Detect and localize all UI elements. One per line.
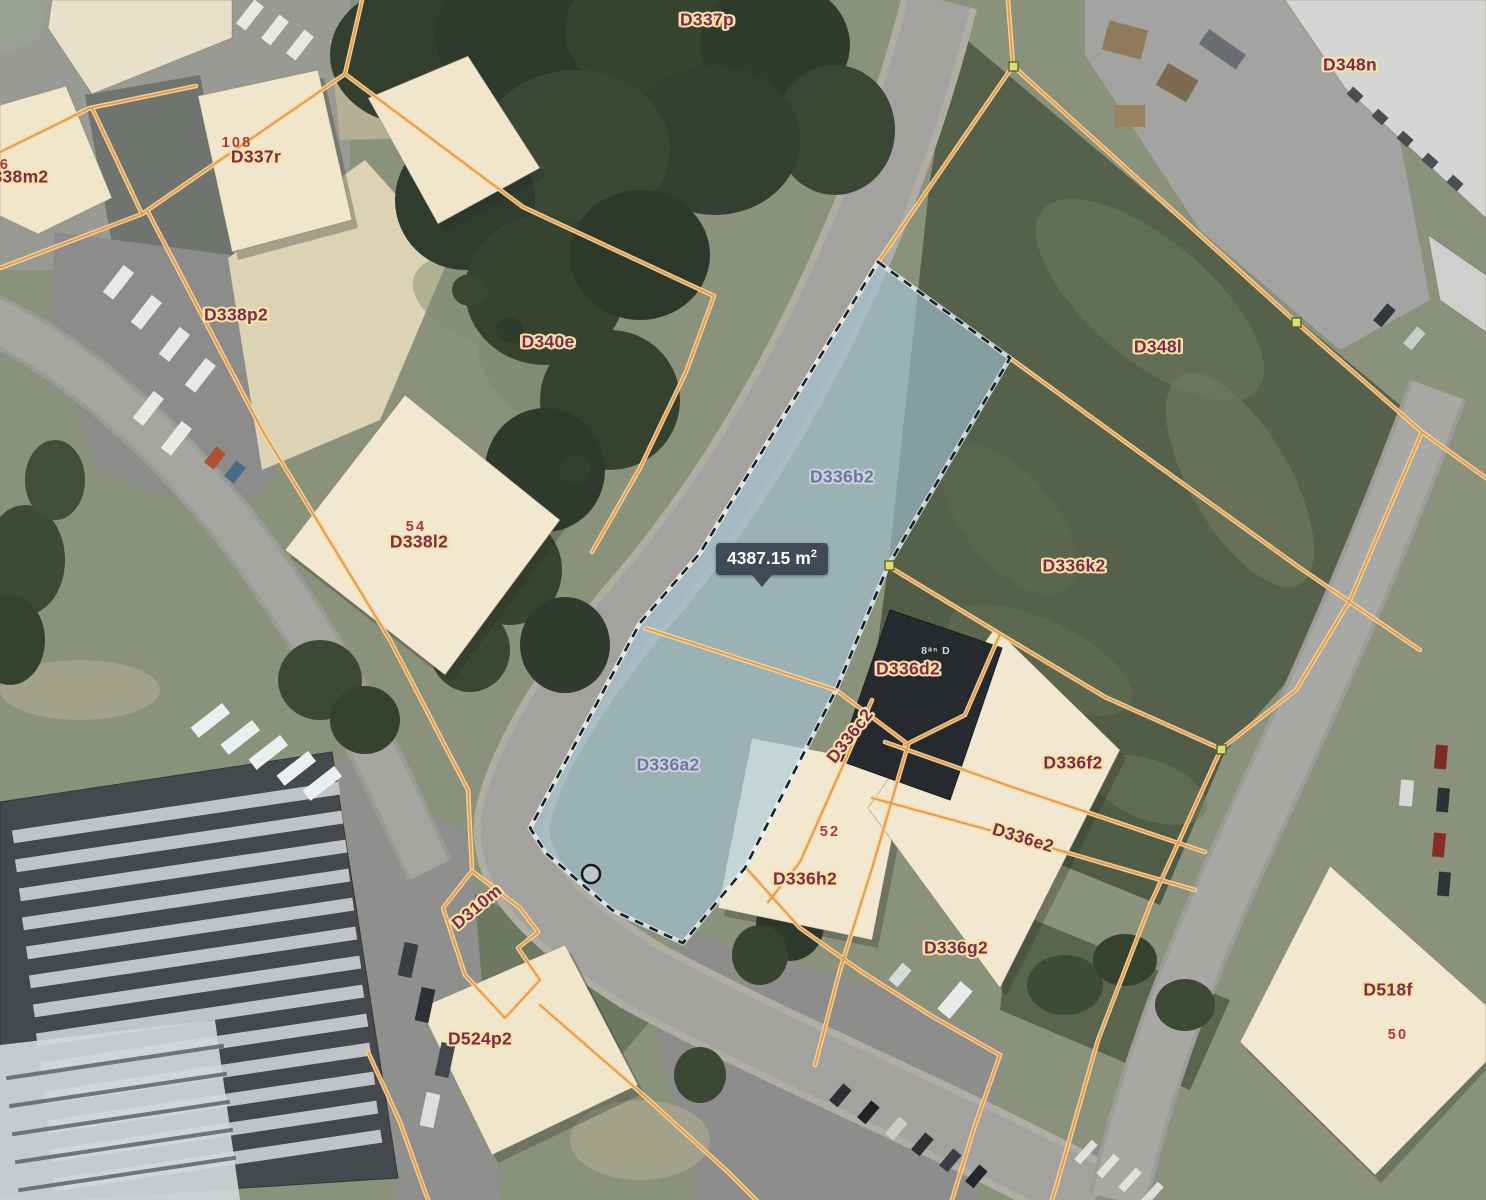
parcel-label-D340e[interactable]: D340e — [521, 332, 574, 353]
measure-point-handle[interactable] — [582, 865, 600, 883]
area-measurement-tooltip: 4387.15m2 — [716, 543, 828, 575]
parcel-label-D338m2[interactable]: D338m2 — [0, 167, 48, 188]
parcel-label-D524p2[interactable]: D524p2 — [448, 1029, 512, 1050]
parcel-label-D338p2[interactable]: D338p2 — [204, 305, 268, 326]
parcel-label-D518f[interactable]: D518f — [1363, 980, 1412, 1001]
vertex-marker[interactable] — [885, 561, 894, 570]
area-unit-exponent: 2 — [811, 548, 817, 560]
parcel-label-D348n[interactable]: D348n — [1323, 55, 1377, 76]
area-value: 4387.15 — [727, 548, 790, 568]
parcel-label-D336d2[interactable]: D336d2 — [876, 659, 940, 680]
map-viewport[interactable]: D337pD337rD338m2D338p2D340eD348nD348lD33… — [0, 0, 1486, 1200]
aerial-basemap — [0, 0, 1486, 1200]
parcel-label-D336b2[interactable]: D336b2 — [810, 467, 874, 488]
parcel-label-D337r[interactable]: D337r — [231, 147, 281, 168]
parcel-label-D336k2[interactable]: D336k2 — [1042, 556, 1105, 577]
parcel-label-D336g2[interactable]: D336g2 — [924, 938, 988, 959]
parcel-label-D348l[interactable]: D348l — [1134, 337, 1182, 358]
parcel-label-D336f2[interactable]: D336f2 — [1043, 753, 1102, 774]
house-number: 50 — [1388, 1027, 1409, 1043]
parcel-label-D338l2[interactable]: D338l2 — [390, 532, 448, 553]
vertex-marker[interactable] — [1009, 62, 1018, 71]
roof-marking-text: 8ᵃⁿ D — [921, 645, 950, 657]
area-unit: m — [795, 548, 811, 568]
house-number: 52 — [820, 824, 841, 840]
parcel-label-D336a2[interactable]: D336a2 — [636, 755, 699, 776]
vertex-marker[interactable] — [1217, 745, 1226, 754]
parcel-label-D336h2[interactable]: D336h2 — [773, 869, 837, 890]
parcel-label-D337p[interactable]: D337p — [680, 10, 734, 31]
vertex-marker[interactable] — [1292, 318, 1301, 327]
